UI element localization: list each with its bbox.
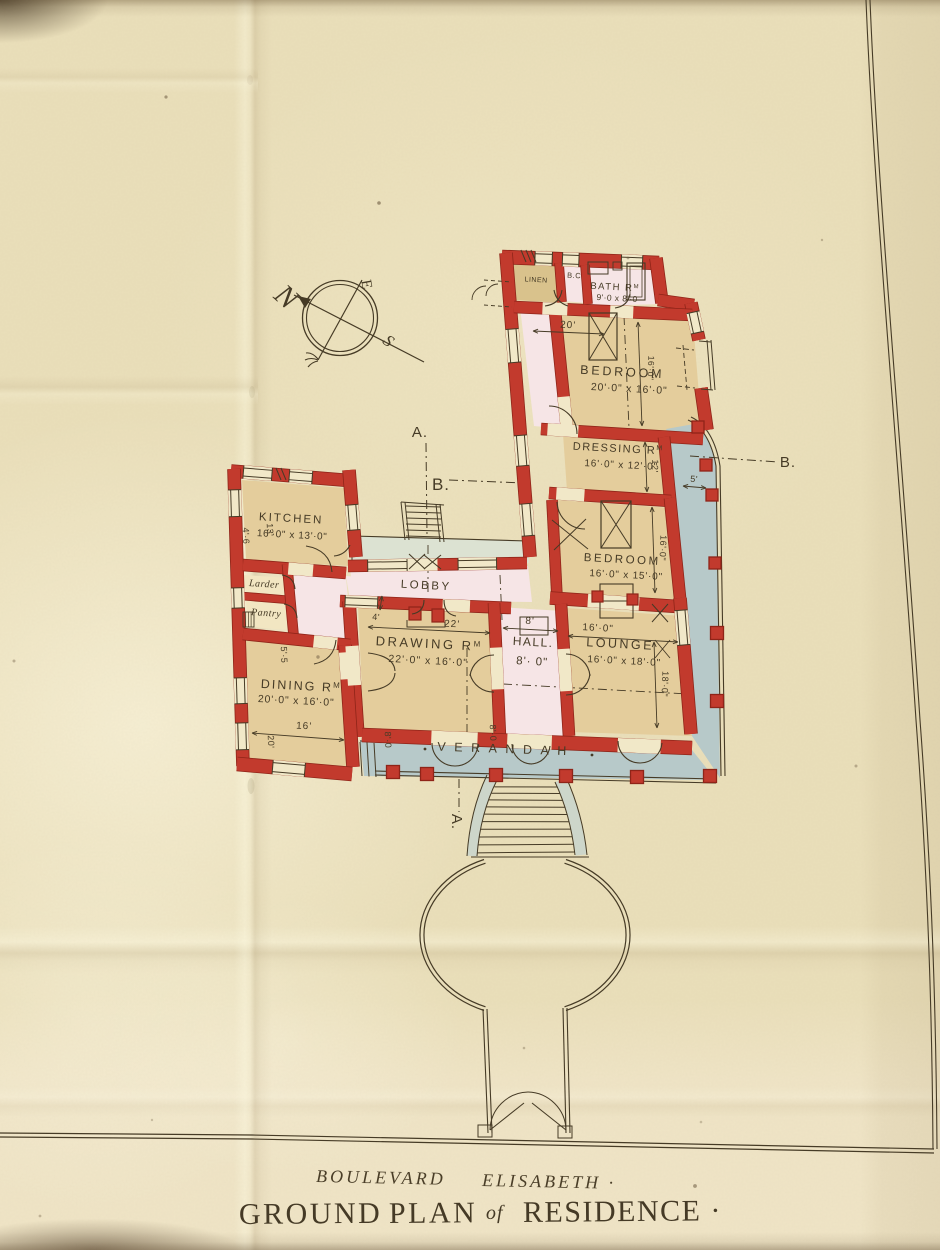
svg-text:16': 16' [296, 721, 313, 733]
svg-text:HALL.: HALL. [512, 634, 554, 650]
svg-text:8'·0: 8'·0 [488, 724, 499, 741]
svg-text:8'·0: 8'·0 [383, 731, 394, 748]
svg-text:16'·0": 16'·0" [582, 622, 614, 635]
svg-text:LINEN: LINEN [524, 276, 547, 284]
svg-text:20': 20' [266, 735, 276, 749]
svg-text:Pantry: Pantry [250, 607, 282, 620]
svg-text:B.: B. [780, 454, 796, 471]
svg-text:22': 22' [444, 619, 461, 631]
svg-text:5': 5' [690, 474, 698, 484]
svg-text:Larder: Larder [248, 578, 280, 591]
svg-text:5'·5: 5'·5 [279, 646, 290, 663]
svg-text:A.: A. [412, 424, 428, 441]
svg-text:8'· 0": 8'· 0" [516, 655, 549, 669]
svg-text:4': 4' [372, 612, 380, 622]
svg-text:20': 20' [560, 320, 577, 332]
svg-text:PLAN: PLAN [389, 1196, 478, 1230]
svg-text:8': 8' [525, 616, 535, 627]
svg-text:of: of [486, 1202, 505, 1224]
svg-text:4'·6: 4'·6 [241, 527, 252, 544]
svg-text:B.C: B.C [567, 271, 582, 281]
svg-text:18'·0": 18'·0" [660, 671, 671, 697]
svg-text:GROUND: GROUND [239, 1197, 383, 1231]
svg-text:B.: B. [432, 475, 450, 494]
svg-text:BOULEVARD: BOULEVARD [316, 1166, 446, 1189]
svg-text:A.: A. [448, 814, 465, 830]
svg-text:ELISABETH ·: ELISABETH · [481, 1170, 616, 1193]
svg-text:RESIDENCE ·: RESIDENCE · [523, 1194, 722, 1229]
